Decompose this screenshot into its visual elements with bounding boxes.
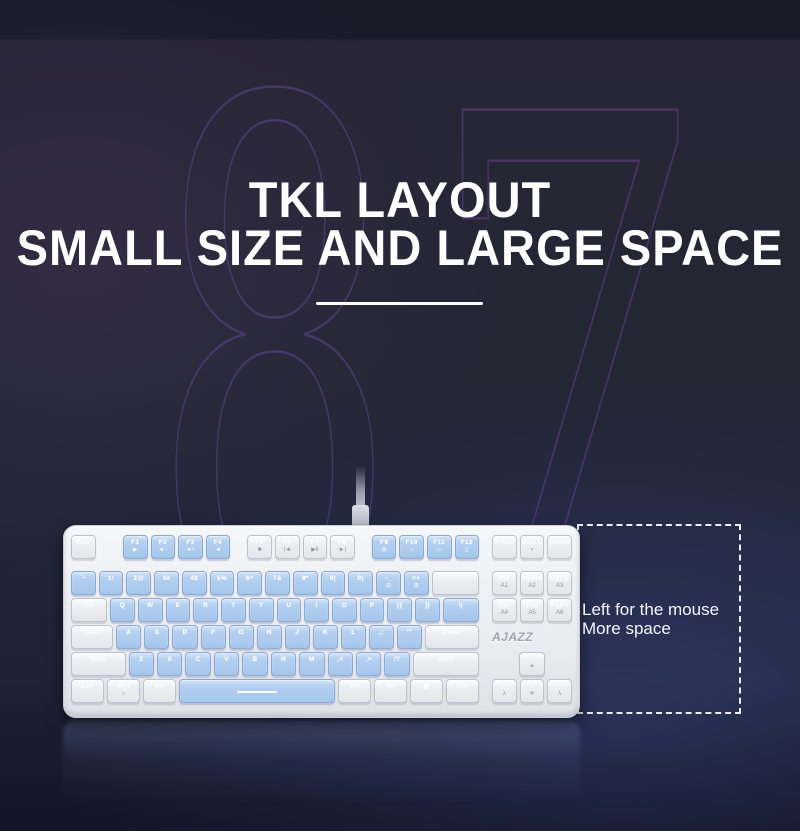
key-legend: PgUp bbox=[551, 575, 569, 582]
key-legend: F7 bbox=[311, 539, 319, 546]
key-sub-legend: λ bbox=[558, 691, 561, 697]
key-legend: Tab bbox=[83, 602, 95, 609]
key-legend: F10 bbox=[406, 539, 418, 546]
key-legend: T bbox=[231, 602, 235, 609]
key-s: S bbox=[144, 625, 169, 649]
key-legend: M bbox=[309, 656, 315, 663]
key-slash: /? bbox=[384, 652, 409, 676]
key-i: I bbox=[304, 598, 329, 622]
key-o: O bbox=[332, 598, 357, 622]
key-m: M bbox=[299, 652, 324, 676]
key-caps: Caps bbox=[71, 625, 113, 649]
key-e: E bbox=[166, 598, 191, 622]
key-legend: J bbox=[295, 629, 299, 636]
key-gap bbox=[233, 535, 244, 559]
key-left-arrow: ←λ bbox=[492, 679, 517, 703]
key-sub-legend: ⊞ bbox=[414, 583, 419, 589]
key-legend: 9( bbox=[330, 575, 336, 582]
key-q: Q bbox=[110, 598, 135, 622]
key-legend: F12 bbox=[461, 539, 473, 546]
key-rbracket: ]} bbox=[415, 598, 440, 622]
key-0: 0) bbox=[348, 571, 373, 595]
key-down-arrow: ↓☀ bbox=[520, 679, 545, 703]
key-sub-legend: A6 bbox=[556, 610, 563, 616]
key-sub-legend: ◄+ bbox=[186, 547, 195, 553]
key-sub-legend: ▭ bbox=[436, 547, 442, 553]
key-legend: ▤ bbox=[423, 683, 429, 690]
key-legend: F6 bbox=[283, 539, 291, 546]
key-legend: ↓ bbox=[530, 683, 534, 690]
key-up-arrow: ↑☀ bbox=[519, 652, 545, 676]
key-backslash: \| bbox=[443, 598, 479, 622]
keyboard-row: ↑☀ bbox=[492, 652, 572, 676]
key-legend: Esc bbox=[77, 539, 89, 546]
key-legend: P bbox=[370, 602, 375, 609]
key-legend: X bbox=[167, 656, 172, 663]
key-h: H bbox=[257, 625, 282, 649]
key-1: 1! bbox=[99, 571, 124, 595]
keyboard-row: `~1!2@3#4$5%6^7&8*9(0)-_⊟=+⊞← bbox=[71, 571, 479, 595]
key-ins: InsA1 bbox=[492, 571, 517, 595]
key-end: EndA5 bbox=[520, 598, 545, 622]
keyboard-nav-rows: PrtScScrLk▪PauseInsA1HomeA2PgUpA3DelA4En… bbox=[492, 535, 572, 717]
key-f4: F4◄ bbox=[206, 535, 231, 559]
keyboard-row: DelA4EndA5PgDnA6 bbox=[492, 598, 572, 622]
mouse-space-note: Left for the mouse More space bbox=[582, 600, 742, 638]
key-enter: Enter bbox=[425, 625, 479, 649]
key-legend: Fn bbox=[386, 683, 395, 690]
key-legend: F4 bbox=[214, 539, 222, 546]
key-7: 7& bbox=[265, 571, 290, 595]
key-sub-legend: ▪ bbox=[531, 547, 533, 553]
key-legend: F2 bbox=[159, 539, 167, 546]
key-v: V bbox=[214, 652, 239, 676]
keyboard-row: ←λ↓☀→λ bbox=[492, 679, 572, 703]
key-alt: Alt bbox=[143, 679, 176, 703]
key-d: D bbox=[172, 625, 197, 649]
key-sub-legend: ▯ bbox=[465, 547, 468, 553]
key-3: 3# bbox=[154, 571, 179, 595]
key-legend: H bbox=[267, 629, 272, 636]
key-legend: A bbox=[126, 629, 131, 636]
key-legend: W bbox=[147, 602, 153, 609]
key-f1: F1▶ bbox=[123, 535, 148, 559]
key-legend: K bbox=[323, 629, 328, 636]
keyboard-row: ShiftZXCVBNM,<.>/?Shift bbox=[71, 652, 479, 676]
key-legend: Shift bbox=[438, 656, 454, 663]
key-legend: ↑ bbox=[530, 656, 534, 663]
mouse-space-note-line2: More space bbox=[582, 619, 742, 638]
key-sub-legend: ⌂ bbox=[122, 691, 126, 697]
key-legend: \| bbox=[459, 602, 463, 609]
key-sub-legend: ⌂ bbox=[410, 547, 414, 553]
key-legend: 1! bbox=[108, 575, 114, 582]
key-l: L bbox=[341, 625, 366, 649]
headline-underline bbox=[316, 302, 483, 305]
keyboard-plate: EscF1▶F2◄−F3◄+F4◄F5■F6|◄F7▶‖F8►|F9⊞F10⌂F… bbox=[64, 526, 579, 717]
key-equals: =+⊞ bbox=[404, 571, 429, 595]
key-f10: F10⌂ bbox=[399, 535, 424, 559]
key-legend: 5% bbox=[217, 575, 227, 582]
key-sub-legend: A3 bbox=[556, 583, 563, 589]
key-sub-legend: ⊟ bbox=[386, 583, 391, 589]
key-z: Z bbox=[129, 652, 154, 676]
key-sub-legend: ☀ bbox=[529, 664, 534, 670]
key-legend: 0) bbox=[358, 575, 364, 582]
key-semicolon: ;: bbox=[369, 625, 394, 649]
key-legend: `~ bbox=[80, 575, 87, 582]
key-r: R bbox=[193, 598, 218, 622]
mouse-space-note-line1: Left for the mouse bbox=[582, 600, 742, 619]
key-esc: Esc bbox=[71, 535, 96, 559]
key-legend: V bbox=[224, 656, 229, 663]
key-legend: Q bbox=[120, 602, 125, 609]
key-comma: ,< bbox=[328, 652, 353, 676]
key-legend: O bbox=[342, 602, 347, 609]
keyboard-row: PrtScScrLk▪Pause bbox=[492, 535, 572, 559]
key-k: K bbox=[313, 625, 338, 649]
key-legend: 8* bbox=[302, 575, 309, 582]
key-quote: '" bbox=[397, 625, 422, 649]
keyboard-row: CtrlWin⌂AltAltFn▤Ctrl bbox=[71, 679, 479, 703]
key-legend: Ins bbox=[499, 575, 509, 582]
key-legend: Pause bbox=[549, 539, 570, 546]
key-ctrl: Ctrl bbox=[71, 679, 104, 703]
key-sub-legend: ◄ bbox=[215, 547, 221, 553]
key-gap bbox=[358, 535, 369, 559]
key-legend: Caps bbox=[84, 629, 101, 636]
keyboard-row: AJAZZ bbox=[492, 625, 572, 649]
key-home: HomeA2 bbox=[520, 571, 545, 595]
key-legend: Home bbox=[522, 575, 541, 582]
key-legend: /? bbox=[394, 656, 400, 663]
key-sub-legend: ⊞ bbox=[382, 547, 387, 553]
key-gap bbox=[548, 652, 572, 676]
key-tab: Tab bbox=[71, 598, 107, 622]
key-sub-legend: A5 bbox=[528, 610, 535, 616]
key-sub-legend: ◄− bbox=[158, 547, 167, 553]
key-sub-legend: ▶‖ bbox=[311, 547, 318, 553]
key-space bbox=[179, 679, 336, 703]
key-2: 2@ bbox=[126, 571, 151, 595]
keyboard-row: CapsASDFGHJKL;:'"Enter bbox=[71, 625, 479, 649]
key-minus: -_⊟ bbox=[376, 571, 401, 595]
key-legend: Y bbox=[259, 602, 264, 609]
keyboard-row: EscF1▶F2◄−F3◄+F4◄F5■F6|◄F7▶‖F8►|F9⊞F10⌂F… bbox=[71, 535, 479, 559]
key-legend: -_ bbox=[385, 575, 391, 582]
key-menu: ▤ bbox=[410, 679, 443, 703]
key-6: 6^ bbox=[237, 571, 262, 595]
key-legend: Alt bbox=[350, 683, 360, 690]
headline-line2: SMALL SIZE AND LARGE SPACE bbox=[0, 223, 800, 273]
keyboard-row: InsA1HomeA2PgUpA3 bbox=[492, 571, 572, 595]
key-pause: Pause bbox=[547, 535, 572, 559]
key-shift: Shift bbox=[71, 652, 126, 676]
key-legend: PgDn bbox=[551, 602, 569, 609]
key-legend: End bbox=[525, 602, 538, 609]
key-backspace: ← bbox=[432, 571, 479, 595]
key-legend: 7& bbox=[273, 575, 282, 582]
key-right-arrow: →λ bbox=[547, 679, 572, 703]
key-del: DelA4 bbox=[492, 598, 517, 622]
key-8: 8* bbox=[293, 571, 318, 595]
key-b: B bbox=[242, 652, 267, 676]
key-scrlk: ScrLk▪ bbox=[520, 535, 545, 559]
key-j: J bbox=[285, 625, 310, 649]
key-legend: B bbox=[252, 656, 257, 663]
key-5: 5% bbox=[210, 571, 235, 595]
promo-banner: 8 7 TKL LAYOUT SMALL SIZE AND LARGE SPAC… bbox=[0, 0, 800, 831]
key-gap bbox=[99, 535, 120, 559]
key-a: A bbox=[116, 625, 141, 649]
key-fn: Fn bbox=[374, 679, 407, 703]
key-legend: 2@ bbox=[134, 575, 145, 582]
key-legend: L bbox=[351, 629, 355, 636]
key-legend: 4$ bbox=[190, 575, 198, 582]
key-legend: 3# bbox=[163, 575, 171, 582]
key-legend: R bbox=[203, 602, 208, 609]
key-f6: F6|◄ bbox=[275, 535, 300, 559]
key-legend: Alt bbox=[155, 683, 165, 690]
key-n: N bbox=[271, 652, 296, 676]
brand-logo: AJAZZ bbox=[492, 625, 572, 649]
keyboard: EscF1▶F2◄−F3◄+F4◄F5■F6|◄F7▶‖F8►|F9⊞F10⌂F… bbox=[63, 525, 580, 718]
key-legend: F1 bbox=[131, 539, 139, 546]
key-f2: F2◄− bbox=[151, 535, 176, 559]
headline-line1: TKL LAYOUT bbox=[0, 175, 800, 225]
key-legend: → bbox=[556, 683, 563, 690]
key-legend: ]} bbox=[425, 602, 430, 609]
key-x: X bbox=[157, 652, 182, 676]
key-sub-legend: λ bbox=[503, 691, 506, 697]
key-sub-legend: ☀ bbox=[529, 691, 534, 697]
key-f5: F5■ bbox=[247, 535, 272, 559]
key-legend: Del bbox=[499, 602, 510, 609]
key-legend: Z bbox=[139, 656, 143, 663]
key-gap bbox=[492, 652, 516, 676]
key-y: Y bbox=[249, 598, 274, 622]
key-legend: U bbox=[286, 602, 291, 609]
keyboard-main-rows: EscF1▶F2◄−F3◄+F4◄F5■F6|◄F7▶‖F8►|F9⊞F10⌂F… bbox=[71, 535, 479, 717]
key-legend: =+ bbox=[412, 575, 420, 582]
key-legend: PrtSc bbox=[495, 539, 513, 546]
key-right-ctrl: Ctrl bbox=[446, 679, 479, 703]
key-legend: N bbox=[281, 656, 286, 663]
key-f8: F8►| bbox=[330, 535, 355, 559]
key-f7: F7▶‖ bbox=[303, 535, 328, 559]
key-p: P bbox=[360, 598, 385, 622]
key-legend: ScrLk bbox=[522, 539, 542, 546]
key-right-shift: Shift bbox=[413, 652, 479, 676]
key-legend: F3 bbox=[186, 539, 194, 546]
key-sub-legend: ▶ bbox=[133, 547, 138, 553]
key-sub-legend: ■ bbox=[258, 547, 262, 553]
key-legend: F bbox=[211, 629, 215, 636]
key-legend: F11 bbox=[433, 539, 445, 546]
key-legend: F9 bbox=[380, 539, 388, 546]
key-legend: Ctrl bbox=[456, 683, 468, 690]
key-sub-legend: A2 bbox=[528, 583, 535, 589]
key-sub-legend: A4 bbox=[501, 610, 508, 616]
key-legend: G bbox=[238, 629, 243, 636]
key-u: U bbox=[277, 598, 302, 622]
keyboard-reflection bbox=[63, 720, 580, 805]
key-f11: F11▭ bbox=[427, 535, 452, 559]
key-legend: D bbox=[183, 629, 188, 636]
key-f3: F3◄+ bbox=[178, 535, 203, 559]
key-4: 4$ bbox=[182, 571, 207, 595]
key-f12: F12▯ bbox=[455, 535, 480, 559]
key-legend: E bbox=[176, 602, 181, 609]
key-win: Win⌂ bbox=[107, 679, 140, 703]
key-legend: Shift bbox=[90, 656, 106, 663]
spacebar-line bbox=[237, 691, 277, 693]
key-sub-legend: |◄ bbox=[283, 547, 291, 553]
key-legend: Ctrl bbox=[81, 683, 93, 690]
key-legend: F5 bbox=[256, 539, 264, 546]
key-legend: F8 bbox=[338, 539, 346, 546]
key-legend: C bbox=[196, 656, 201, 663]
key-legend: ← bbox=[501, 683, 508, 690]
key-legend: ← bbox=[452, 575, 459, 582]
key-sub-legend: A1 bbox=[501, 583, 508, 589]
key-legend: ,< bbox=[337, 656, 343, 663]
key-legend: ;: bbox=[379, 629, 384, 636]
key-legend: Enter bbox=[443, 629, 461, 636]
key-period: .> bbox=[356, 652, 381, 676]
key-legend: [{ bbox=[397, 602, 402, 609]
key-right-alt: Alt bbox=[338, 679, 371, 703]
key-f: F bbox=[201, 625, 226, 649]
key-lbracket: [{ bbox=[387, 598, 412, 622]
key-legend: '" bbox=[407, 629, 412, 636]
keyboard-row: TabQWERTYUIOP[{]}\| bbox=[71, 598, 479, 622]
key-legend: I bbox=[316, 602, 318, 609]
key-pgdn: PgDnA6 bbox=[547, 598, 572, 622]
key-f9: F9⊞ bbox=[372, 535, 397, 559]
key-legend: 6^ bbox=[246, 575, 254, 582]
key-9: 9( bbox=[321, 571, 346, 595]
cable-connector bbox=[352, 505, 369, 527]
key-legend: S bbox=[155, 629, 160, 636]
key-t: T bbox=[221, 598, 246, 622]
key-g: G bbox=[229, 625, 254, 649]
key-grave: `~ bbox=[71, 571, 96, 595]
key-prtsc: PrtSc bbox=[492, 535, 517, 559]
key-w: W bbox=[138, 598, 163, 622]
key-sub-legend: ►| bbox=[339, 547, 347, 553]
key-pgup: PgUpA3 bbox=[547, 571, 572, 595]
key-legend: Win bbox=[117, 683, 130, 690]
key-c: C bbox=[185, 652, 210, 676]
key-legend: .> bbox=[366, 656, 372, 663]
